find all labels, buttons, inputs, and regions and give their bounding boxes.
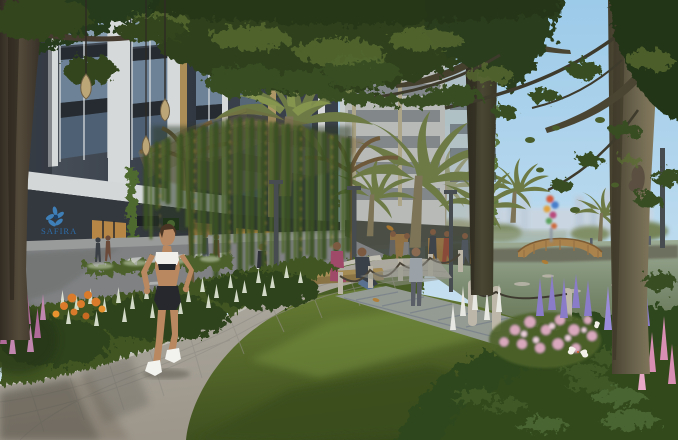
svg-text:SAFIRA: SAFIRA <box>41 226 77 236</box>
